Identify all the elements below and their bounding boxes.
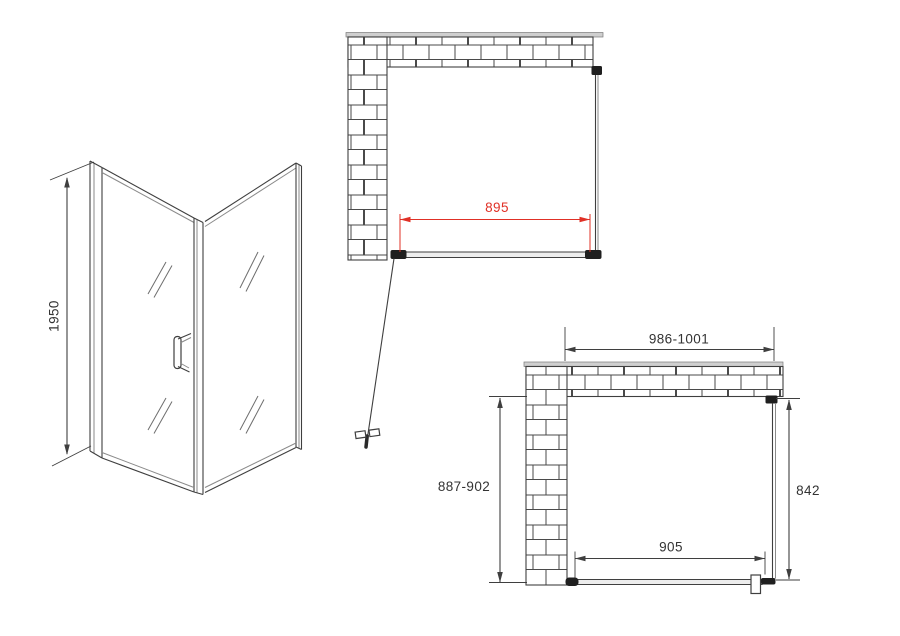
door-swing [355,259,394,448]
door-panel [90,161,203,495]
height-dimension: 1950 [47,162,95,466]
dimension-905-label: 905 [659,540,683,555]
dimension-887-902-label: 887-902 [438,479,490,494]
wall-structure [346,33,603,261]
bottom-plan-view: 986-1001 887-902 [438,327,820,594]
drawing-svg: 1950 [0,0,900,636]
side-panel [205,163,302,493]
glass-hatch-side [240,252,264,434]
wall-left-strip [348,37,387,260]
side-panel-plan [596,75,599,251]
overall-width-dimension: 986-1001 [565,327,774,361]
wall-profile-bracket [592,66,603,75]
door-opening-dimension: 905 [575,540,765,578]
dimension-895-label: 895 [485,200,509,215]
wall-structure-2 [524,362,783,585]
technical-drawing-canvas: 1950 [0,0,900,636]
glass-hatch-door [148,262,172,434]
door-width-dimension-red: 895 [400,200,590,252]
side-panel-plan-2 [773,403,776,579]
door-handle [174,334,191,373]
dimension-842-label: 842 [796,483,820,498]
dimension-height-label: 1950 [47,300,62,332]
plan-door-handle [751,575,761,594]
door-bar-plan [391,250,602,259]
side-panel-dimension: 842 [776,399,820,581]
door-bar-plan-2 [566,575,776,594]
dimension-986-1001-label: 986-1001 [649,332,709,347]
wall-left-strip-2 [526,367,567,586]
isometric-view: 1950 [47,161,302,495]
overall-depth-dimension: 887-902 [438,397,527,583]
side-panel-bracket-2 [766,396,778,404]
